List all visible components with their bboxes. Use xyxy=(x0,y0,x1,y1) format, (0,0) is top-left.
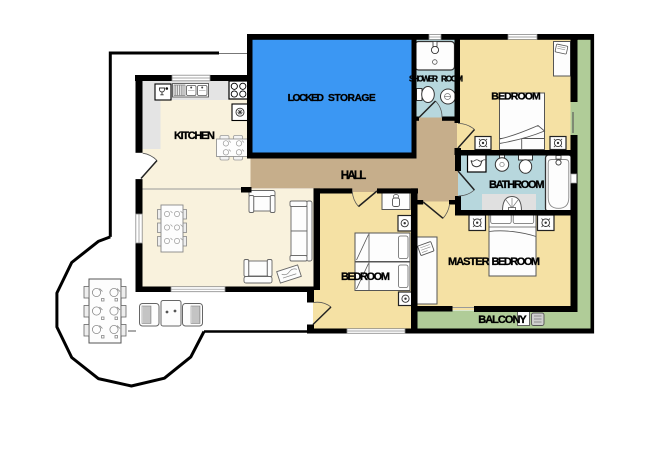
svg-text:LOCKED: LOCKED xyxy=(288,93,324,104)
svg-text:BALCONY: BALCONY xyxy=(478,314,527,326)
svg-text:BEDROOM: BEDROOM xyxy=(491,90,541,102)
svg-text:BATHROOM: BATHROOM xyxy=(489,179,545,191)
svg-text:MASTER: MASTER xyxy=(448,256,490,268)
svg-text:BEDROOM: BEDROOM xyxy=(492,256,541,268)
svg-text:STORAGE: STORAGE xyxy=(328,93,376,104)
svg-text:BEDROOM: BEDROOM xyxy=(341,271,390,283)
svg-text:KITCHEN: KITCHEN xyxy=(174,130,215,142)
svg-text:HALL: HALL xyxy=(341,170,367,182)
svg-text:SHOWER: SHOWER xyxy=(409,74,438,84)
svg-text:ROOM: ROOM xyxy=(441,74,463,84)
